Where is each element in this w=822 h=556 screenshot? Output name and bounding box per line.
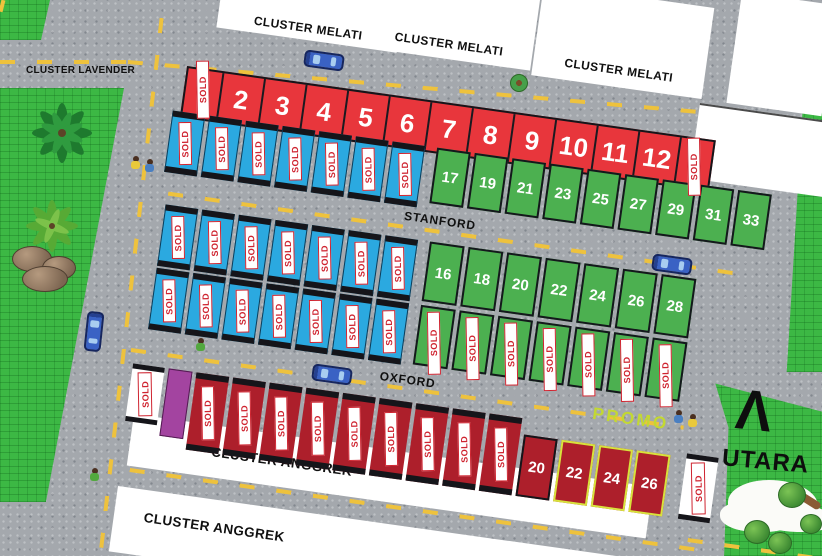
lot-sold-blue[interactable]: SOLD <box>148 268 189 334</box>
lot-24[interactable]: 24 <box>576 263 619 327</box>
sold-banner-text: SOLD <box>180 130 190 157</box>
lot-sold-maroon[interactable]: SOLD <box>259 383 303 465</box>
lot-number: 2 <box>232 83 251 116</box>
lot-number: 31 <box>704 205 723 224</box>
sold-banner-text: SOLD <box>312 415 322 442</box>
sold-banner-text: SOLD <box>399 161 409 188</box>
zone-cluster-melati-2: CLUSTER MELATI <box>364 0 541 71</box>
sold-banner-text: SOLD <box>275 410 285 437</box>
lot-28[interactable]: 28 <box>653 274 696 338</box>
sold-banner: SOLD <box>237 391 251 445</box>
lot-sold-green[interactable]: SOLD <box>644 337 687 401</box>
sold-banner-text: SOLD <box>209 229 219 256</box>
lot-22[interactable]: 22 <box>538 258 581 322</box>
lot-number: 17 <box>441 168 460 187</box>
sold-banner: SOLD <box>398 153 412 196</box>
sold-banner-text: SOLD <box>583 351 593 378</box>
tree <box>768 532 792 554</box>
lot-sold-blue[interactable]: SOLD <box>237 121 278 187</box>
pedestrian <box>688 414 697 429</box>
pedestrian <box>90 468 99 483</box>
sold-banner-text: SOLD <box>392 255 402 282</box>
sold-banner-text: SOLD <box>660 362 670 389</box>
lot-number: 12 <box>640 141 673 176</box>
lot-number: 11 <box>599 135 631 170</box>
lot-sold-blue[interactable]: SOLD <box>194 210 235 276</box>
lot-number: 26 <box>640 474 659 493</box>
sold-banner-text: SOLD <box>172 224 182 251</box>
sold-banner: SOLD <box>317 236 331 279</box>
sold-banner: SOLD <box>244 226 258 269</box>
lot-number: 8 <box>481 119 500 152</box>
cluster-melati-label: CLUSTER MELATI <box>253 14 363 43</box>
sold-banner: SOLD <box>281 231 295 274</box>
lane-dash <box>0 60 128 64</box>
lot-21[interactable]: 21 <box>505 158 546 218</box>
lot-sold-blue[interactable]: SOLD <box>201 116 242 182</box>
sold-banner: SOLD <box>207 221 221 264</box>
sold-banner: SOLD <box>426 311 440 374</box>
lot-number: 4 <box>315 95 334 128</box>
sold-banner-text: SOLD <box>505 340 515 367</box>
sold-banner: SOLD <box>272 295 286 338</box>
sold-banner: SOLD <box>361 148 375 191</box>
sold-banner-text: SOLD <box>237 297 247 324</box>
lot-sold-maroon[interactable]: SOLD <box>186 372 230 454</box>
roadside-tree <box>510 74 528 92</box>
lot-26[interactable]: 26 <box>615 269 658 333</box>
sold-banner: SOLD <box>420 417 434 471</box>
sold-banner-text: SOLD <box>349 420 359 447</box>
grass-area-topleft <box>0 0 50 40</box>
lot-19[interactable]: 19 <box>467 153 508 213</box>
lot-number: 20 <box>511 275 530 294</box>
lot-number: 27 <box>629 195 648 214</box>
cluster-lavender-label: CLUSTER LAVENDER <box>26 65 135 76</box>
lot-sold-maroon[interactable]: SOLD <box>406 403 450 485</box>
sold-banner: SOLD <box>324 142 338 185</box>
sold-banner: SOLD <box>347 407 361 461</box>
lot-20[interactable]: 20 <box>515 435 557 501</box>
lot-sold-maroon[interactable]: SOLD <box>369 398 413 480</box>
lot-sold-blue[interactable]: SOLD <box>347 136 388 202</box>
sold-banner: SOLD <box>494 427 508 481</box>
sold-banner-text: SOLD <box>253 140 263 167</box>
lot-number: 28 <box>665 297 684 316</box>
lot-number: 21 <box>516 179 535 198</box>
sold-banner: SOLD <box>691 462 706 514</box>
sold-banner-text: SOLD <box>202 400 212 427</box>
sold-banner-text: SOLD <box>459 436 469 463</box>
lot-sold-blue[interactable]: SOLD <box>157 204 198 270</box>
lot-20[interactable]: 20 <box>499 252 542 316</box>
sold-banner: SOLD <box>138 372 153 416</box>
lot-number: 3 <box>273 89 292 122</box>
sold-banner-text: SOLD <box>383 318 393 345</box>
lot-16[interactable]: 16 <box>422 242 465 306</box>
zone-cluster-melati-3: CLUSTER MELATI <box>531 0 714 99</box>
sold-banner-text: SOLD <box>363 156 373 183</box>
sold-banner-text: SOLD <box>326 150 336 177</box>
sold-banner-text: SOLD <box>200 292 210 319</box>
lot-sold-blue[interactable]: SOLD <box>384 141 425 207</box>
lot-27[interactable]: 27 <box>617 174 658 234</box>
lot-number: 20 <box>527 458 546 477</box>
sold-banner-text: SOLD <box>544 345 554 372</box>
lot-number: 6 <box>398 107 417 140</box>
sold-banner: SOLD <box>354 242 368 285</box>
sold-banner: SOLD <box>310 402 324 456</box>
sold-banner-text: SOLD <box>163 287 173 314</box>
sold-banner-text: SOLD <box>689 153 699 180</box>
sold-banner-text: SOLD <box>319 244 329 271</box>
sold-banner-text: SOLD <box>467 334 477 361</box>
pedestrian <box>131 156 140 171</box>
lot-23[interactable]: 23 <box>542 163 583 223</box>
sold-banner: SOLD <box>687 138 701 196</box>
sold-banner: SOLD <box>542 327 556 390</box>
lot-number: 16 <box>434 264 453 283</box>
tree <box>744 520 770 544</box>
lot-sold-blue[interactable]: SOLD <box>274 126 315 192</box>
lot-number: 33 <box>742 210 761 229</box>
sold-banner: SOLD <box>658 344 672 407</box>
zone-empty-block-top-right <box>726 0 822 116</box>
lot-sold-maroon[interactable]: SOLD <box>442 408 486 490</box>
sold-banner: SOLD <box>581 333 595 396</box>
lot-number: 26 <box>627 291 646 310</box>
lot-sold-green[interactable]: SOLD <box>529 321 572 385</box>
lot-sold-blue[interactable]: SOLD <box>311 131 352 197</box>
lot-sold-white[interactable]: SOLD <box>125 363 165 425</box>
lot-number: 23 <box>554 184 573 203</box>
lot-number: 18 <box>472 270 491 289</box>
sold-banner-text: SOLD <box>356 250 366 277</box>
lot-sold-blue[interactable]: SOLD <box>295 288 336 354</box>
sold-banner-text: SOLD <box>282 239 292 266</box>
lot-sold-blue[interactable]: SOLD <box>267 220 308 286</box>
lot-sold-blue[interactable]: SOLD <box>377 235 418 301</box>
sold-banner: SOLD <box>465 317 479 380</box>
sold-banner: SOLD <box>178 122 192 165</box>
lot-number: 22 <box>550 280 569 299</box>
tree <box>778 482 806 508</box>
sold-banner: SOLD <box>171 216 185 259</box>
sold-banner: SOLD <box>457 422 471 476</box>
sold-banner-text: SOLD <box>621 356 631 383</box>
sold-banner: SOLD <box>215 127 229 170</box>
sold-banner-text: SOLD <box>239 405 249 432</box>
lot-25[interactable]: 25 <box>580 169 621 229</box>
car <box>83 311 104 353</box>
lot-number: 7 <box>440 113 459 146</box>
lot-sold-blue[interactable]: SOLD <box>221 278 262 344</box>
lot-18[interactable]: 18 <box>460 247 503 311</box>
sold-banner: SOLD <box>274 396 288 450</box>
sold-banner: SOLD <box>384 412 398 466</box>
lot-sold-blue[interactable]: SOLD <box>304 225 345 291</box>
sold-banner-text: SOLD <box>273 303 283 330</box>
lot-sold-green[interactable]: SOLD <box>567 327 610 391</box>
lot-22[interactable]: 22 <box>553 440 595 506</box>
sold-banner-text: SOLD <box>428 329 438 356</box>
sold-banner: SOLD <box>251 132 265 175</box>
lot-sold-white-end[interactable]: SOLD <box>678 453 719 523</box>
pedestrian <box>145 159 154 174</box>
sold-banner: SOLD <box>200 386 214 440</box>
sold-banner: SOLD <box>235 289 249 332</box>
lot-sold-blue[interactable]: SOLD <box>368 299 409 365</box>
sold-banner: SOLD <box>391 247 405 290</box>
lot-sold-maroon[interactable]: SOLD <box>332 393 376 475</box>
sold-banner-text: SOLD <box>693 475 703 502</box>
sold-banner-text: SOLD <box>198 76 208 103</box>
sold-banner-text: SOLD <box>385 425 395 452</box>
sold-banner-text: SOLD <box>140 381 150 408</box>
north-arrow-icon: Λ <box>733 381 775 441</box>
lot-17[interactable]: 17 <box>429 148 470 208</box>
lot-number: 29 <box>666 200 685 219</box>
lot-number: 22 <box>565 463 584 482</box>
sold-banner: SOLD <box>196 61 210 119</box>
lot-sold-green[interactable]: SOLD <box>413 305 456 369</box>
pedestrian <box>196 338 205 353</box>
lot-number: 19 <box>478 173 497 192</box>
sold-banner: SOLD <box>620 338 634 401</box>
lot-number: 24 <box>588 286 607 305</box>
palm-trees <box>0 78 130 258</box>
sold-banner: SOLD <box>288 137 302 180</box>
lot-sold-maroon[interactable]: SOLD <box>222 377 266 459</box>
lot-26[interactable]: 26 <box>628 450 670 516</box>
sold-banner-text: SOLD <box>347 313 357 340</box>
sold-banner-text: SOLD <box>310 308 320 335</box>
sold-banner: SOLD <box>308 300 322 343</box>
lot-sold-blue[interactable]: SOLD <box>230 215 271 281</box>
site-plan-map: CLUSTER MELATI CLUSTER MELATI CLUSTER ME… <box>0 0 822 556</box>
sold-banner: SOLD <box>504 322 518 385</box>
lot-sold-maroon[interactable]: SOLD <box>296 388 340 470</box>
lot-number: 25 <box>591 189 610 208</box>
lot-24[interactable]: 24 <box>591 445 633 511</box>
lot-33[interactable]: 33 <box>730 190 771 250</box>
cluster-anggrek-label: CLUSTER ANGGREK <box>143 510 286 545</box>
sold-banner: SOLD <box>345 305 359 348</box>
sold-banner: SOLD <box>198 284 212 327</box>
rock <box>22 266 68 292</box>
lot-number: 5 <box>356 101 375 134</box>
lot-number: 9 <box>523 124 542 157</box>
pedestrian <box>674 410 683 425</box>
sold-banner-text: SOLD <box>246 234 256 261</box>
lot-number: 10 <box>557 129 590 164</box>
lot-sold-blue[interactable]: SOLD <box>185 273 226 339</box>
lot-sold-blue[interactable]: SOLD <box>258 283 299 349</box>
cluster-melati-label: CLUSTER MELATI <box>394 30 504 59</box>
lot-rows-group: SOLD23456789101112SOLD SOLDSOLDSOLDSOLDS… <box>114 44 822 556</box>
lot-sold-green[interactable]: SOLD <box>606 332 649 396</box>
sold-banner: SOLD <box>162 279 176 322</box>
lot-sold-maroon[interactable]: SOLD <box>479 414 523 496</box>
tree <box>800 514 822 534</box>
lot-sold-blue[interactable]: SOLD <box>331 294 372 360</box>
lot-sold-green[interactable]: SOLD <box>451 310 494 374</box>
lot-sold-blue[interactable]: SOLD <box>164 110 205 176</box>
sold-banner-text: SOLD <box>289 145 299 172</box>
sold-banner-text: SOLD <box>495 441 505 468</box>
sold-banner-text: SOLD <box>216 135 226 162</box>
cluster-melati-label: CLUSTER MELATI <box>564 56 674 85</box>
sold-banner: SOLD <box>382 310 396 353</box>
sold-banner-text: SOLD <box>422 431 432 458</box>
lot-sold-blue[interactable]: SOLD <box>340 230 381 296</box>
lot-number: 24 <box>602 469 621 488</box>
lot-sold-green[interactable]: SOLD <box>490 316 533 380</box>
